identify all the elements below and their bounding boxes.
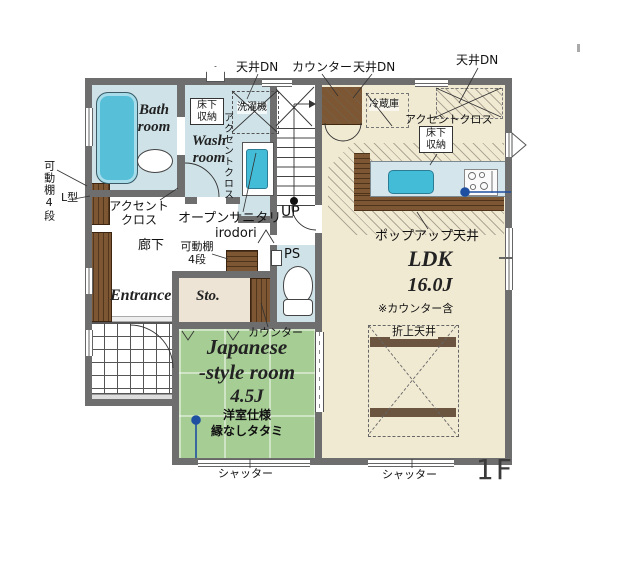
wall-ldk-left-lower bbox=[315, 412, 322, 458]
vanity-sink bbox=[246, 149, 268, 189]
entrance-label: Entrance bbox=[110, 287, 171, 305]
japanese-room-name-1: Japanese bbox=[187, 335, 307, 359]
shutter-label-right: シャッター bbox=[382, 469, 437, 482]
window-left-bath bbox=[85, 108, 93, 146]
window-left-entrance bbox=[85, 268, 93, 294]
bath-room-label: Bath room bbox=[128, 102, 180, 137]
shutter-label-left: シャッター bbox=[218, 468, 273, 481]
entrance-porch-tiles bbox=[90, 322, 174, 394]
underfloor-storage-label-ldk: 床下 収納 bbox=[419, 126, 453, 153]
ceiling-dn-label-2: 天井DN bbox=[353, 61, 395, 75]
window-right-ldk bbox=[505, 228, 513, 290]
kitchen-stove bbox=[464, 169, 498, 196]
counter-label-top: カウンター bbox=[292, 61, 352, 75]
window-top-stairs bbox=[262, 79, 292, 87]
opening-japanese-ldk bbox=[315, 332, 324, 412]
movable-shelf-label-hall: 可動棚 4段 bbox=[177, 241, 217, 266]
window-bottom-japanese bbox=[198, 459, 310, 467]
popup-ceiling-label: ポップアップ天井 bbox=[375, 230, 479, 245]
storage-label: Sto. bbox=[196, 288, 220, 305]
wall-bath-bottom bbox=[85, 190, 185, 197]
vent-window-mark bbox=[206, 66, 225, 82]
ceiling-dn-label-3: 天井DN bbox=[456, 54, 498, 68]
open-sanitary-label: オープンサニタリー bbox=[178, 212, 294, 227]
japanese-room-size: 4.5J bbox=[187, 386, 307, 408]
ldk-size-label: 16.0J bbox=[385, 274, 475, 297]
pipe-space-box bbox=[271, 250, 282, 266]
wall-stairs-right-b bbox=[315, 233, 322, 332]
stray-mark bbox=[577, 44, 580, 52]
up-label: UP bbox=[281, 204, 300, 220]
hallway-label: 廊下 bbox=[138, 239, 164, 254]
stair-landing-diagonal-1 bbox=[276, 87, 314, 126]
accent-cloth-label-ldk: アクセントクロス bbox=[405, 114, 492, 127]
japanese-counter-shelf bbox=[250, 278, 272, 324]
coffered-ceiling-label: 折上天井 bbox=[390, 326, 438, 339]
hall-movable-shelf bbox=[226, 250, 258, 273]
ps-label: PS bbox=[284, 248, 300, 263]
wash-room-label: Wash room bbox=[184, 133, 234, 168]
bath-stool bbox=[137, 149, 173, 173]
floor-label-1f: 1F bbox=[476, 454, 514, 486]
open-sanitary-name-label: irodori bbox=[215, 227, 257, 242]
floor-plan: 床下 収納 床下 収納 天井DN カウンター 天井DN 天井DN 洗濯機 アクセ… bbox=[0, 0, 635, 569]
ldk-note-label: ※カウンター含 bbox=[378, 303, 453, 316]
washing-machine-label: 洗濯機 bbox=[237, 102, 267, 114]
wall-stairs-right-a bbox=[315, 85, 322, 205]
window-bottom-ldk bbox=[368, 459, 454, 467]
wall-wash-bottom-a bbox=[185, 197, 197, 204]
door-right-kitchen bbox=[505, 133, 513, 157]
accent-cloth-label-hall: アクセント クロス bbox=[106, 200, 172, 228]
kitchen-door-swing-mark bbox=[512, 133, 526, 157]
wall-storage-top bbox=[172, 271, 270, 278]
ldk-name-label: LDK bbox=[385, 246, 475, 271]
wall-porch-bottom bbox=[85, 399, 179, 406]
leader-movable-shelf-left bbox=[57, 170, 87, 186]
window-right-tick bbox=[499, 257, 512, 259]
kitchen-counter-horizontal bbox=[354, 195, 504, 211]
coffered-beam-bottom bbox=[370, 408, 456, 417]
japanese-room-name-2: -style room bbox=[187, 360, 307, 384]
kitchen-sink bbox=[388, 170, 434, 194]
refrigerator-label: 冷蔵庫 bbox=[369, 99, 399, 111]
japanese-room-note-1: 洋室仕様 bbox=[187, 409, 307, 423]
underfloor-storage-label-wash: 床下 収納 bbox=[190, 98, 224, 125]
stair-landing-diagonal-2 bbox=[276, 89, 312, 126]
ceiling-dn-label-1: 天井DN bbox=[236, 61, 278, 75]
stairs-steps bbox=[277, 128, 315, 206]
l-type-label: L型 bbox=[61, 192, 78, 205]
window-left-porch bbox=[85, 330, 93, 356]
japanese-room-note-2: 縁なしタタミ bbox=[187, 425, 307, 439]
movable-shelf-label-left: 可動棚4段 bbox=[42, 160, 55, 242]
toilet-tank bbox=[283, 299, 313, 316]
pantry-counter bbox=[322, 87, 362, 125]
window-top-ldk bbox=[415, 79, 448, 87]
wall-japanese-left bbox=[172, 271, 179, 465]
